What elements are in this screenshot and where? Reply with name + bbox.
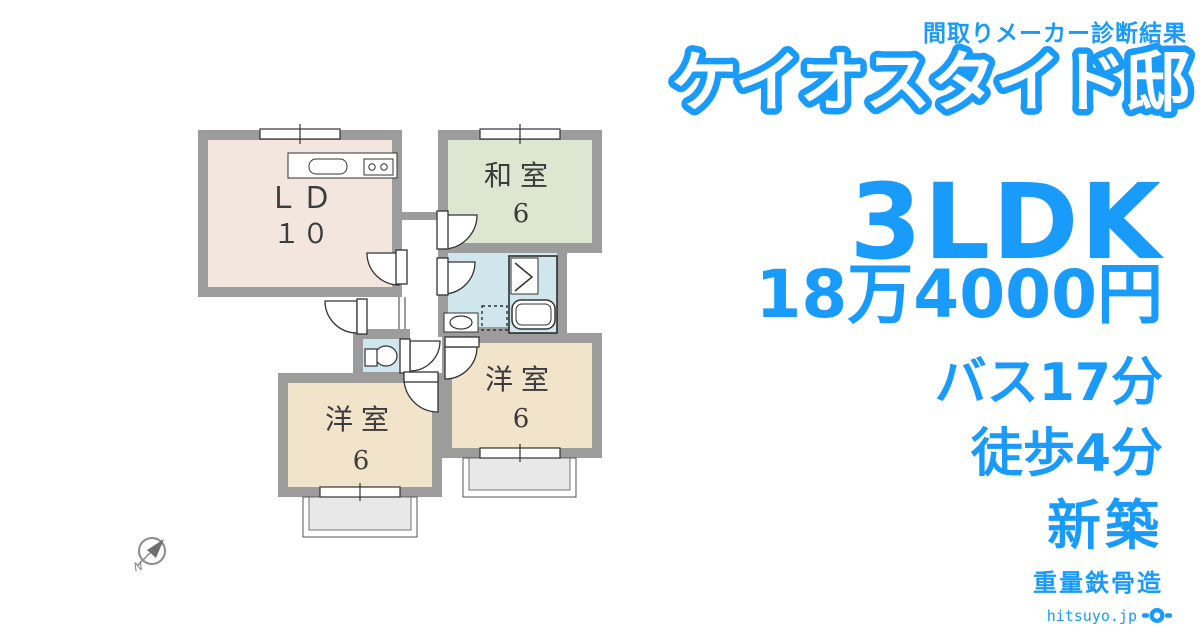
- rent-value: 18万4000円: [755, 262, 1163, 328]
- built-value: 新築: [1047, 499, 1163, 553]
- balcony-left: [303, 497, 417, 537]
- door-toilet: [400, 339, 440, 373]
- site-name: hitsuyo.jp: [1047, 607, 1137, 625]
- label-ld-size: １０: [273, 219, 331, 250]
- walk-time-value: 徒歩4分: [971, 428, 1163, 480]
- house-title-wrap: ケイオスタイド邸: [565, 25, 1200, 125]
- label-west-left: 洋室: [325, 403, 397, 436]
- bus-time-value: バス17分: [935, 357, 1163, 409]
- footer-branding: hitsuyo.jp: [1047, 606, 1172, 626]
- toilet-icon: [365, 346, 397, 366]
- floorplan-result-card: ＬＤ １０ 和室 6 洋室 6 洋室 6 N 間取りメーカー診断結果 ケイオスタ…: [0, 0, 1200, 630]
- washbasin-icon: [444, 313, 478, 332]
- house-title: ケイオスタイド邸: [671, 44, 1190, 121]
- label-washitsu-size: 6: [513, 199, 530, 229]
- kitchen-counter: [288, 153, 397, 178]
- label-washitsu: 和室: [484, 159, 556, 192]
- bathtub-icon: [512, 300, 555, 329]
- bath-unit: [509, 256, 557, 333]
- door-hall: [325, 299, 367, 334]
- label-west-right: 洋室: [485, 363, 557, 396]
- stove-icon: [364, 159, 393, 175]
- sink: [309, 159, 347, 174]
- label-west-right-size: 6: [513, 404, 530, 434]
- hitsuyo-logo-icon: [1142, 606, 1172, 626]
- floorplan-drawing: ＬＤ １０ 和室 6 洋室 6 洋室 6 N: [0, 0, 660, 600]
- balcony-right: [463, 458, 576, 497]
- folding-door-icon: [511, 258, 538, 294]
- label-ld: ＬＤ: [268, 181, 336, 216]
- label-west-left-size: 6: [353, 446, 370, 476]
- structure-value: 重量鉄骨造: [1033, 571, 1163, 595]
- compass-icon: N: [132, 538, 165, 575]
